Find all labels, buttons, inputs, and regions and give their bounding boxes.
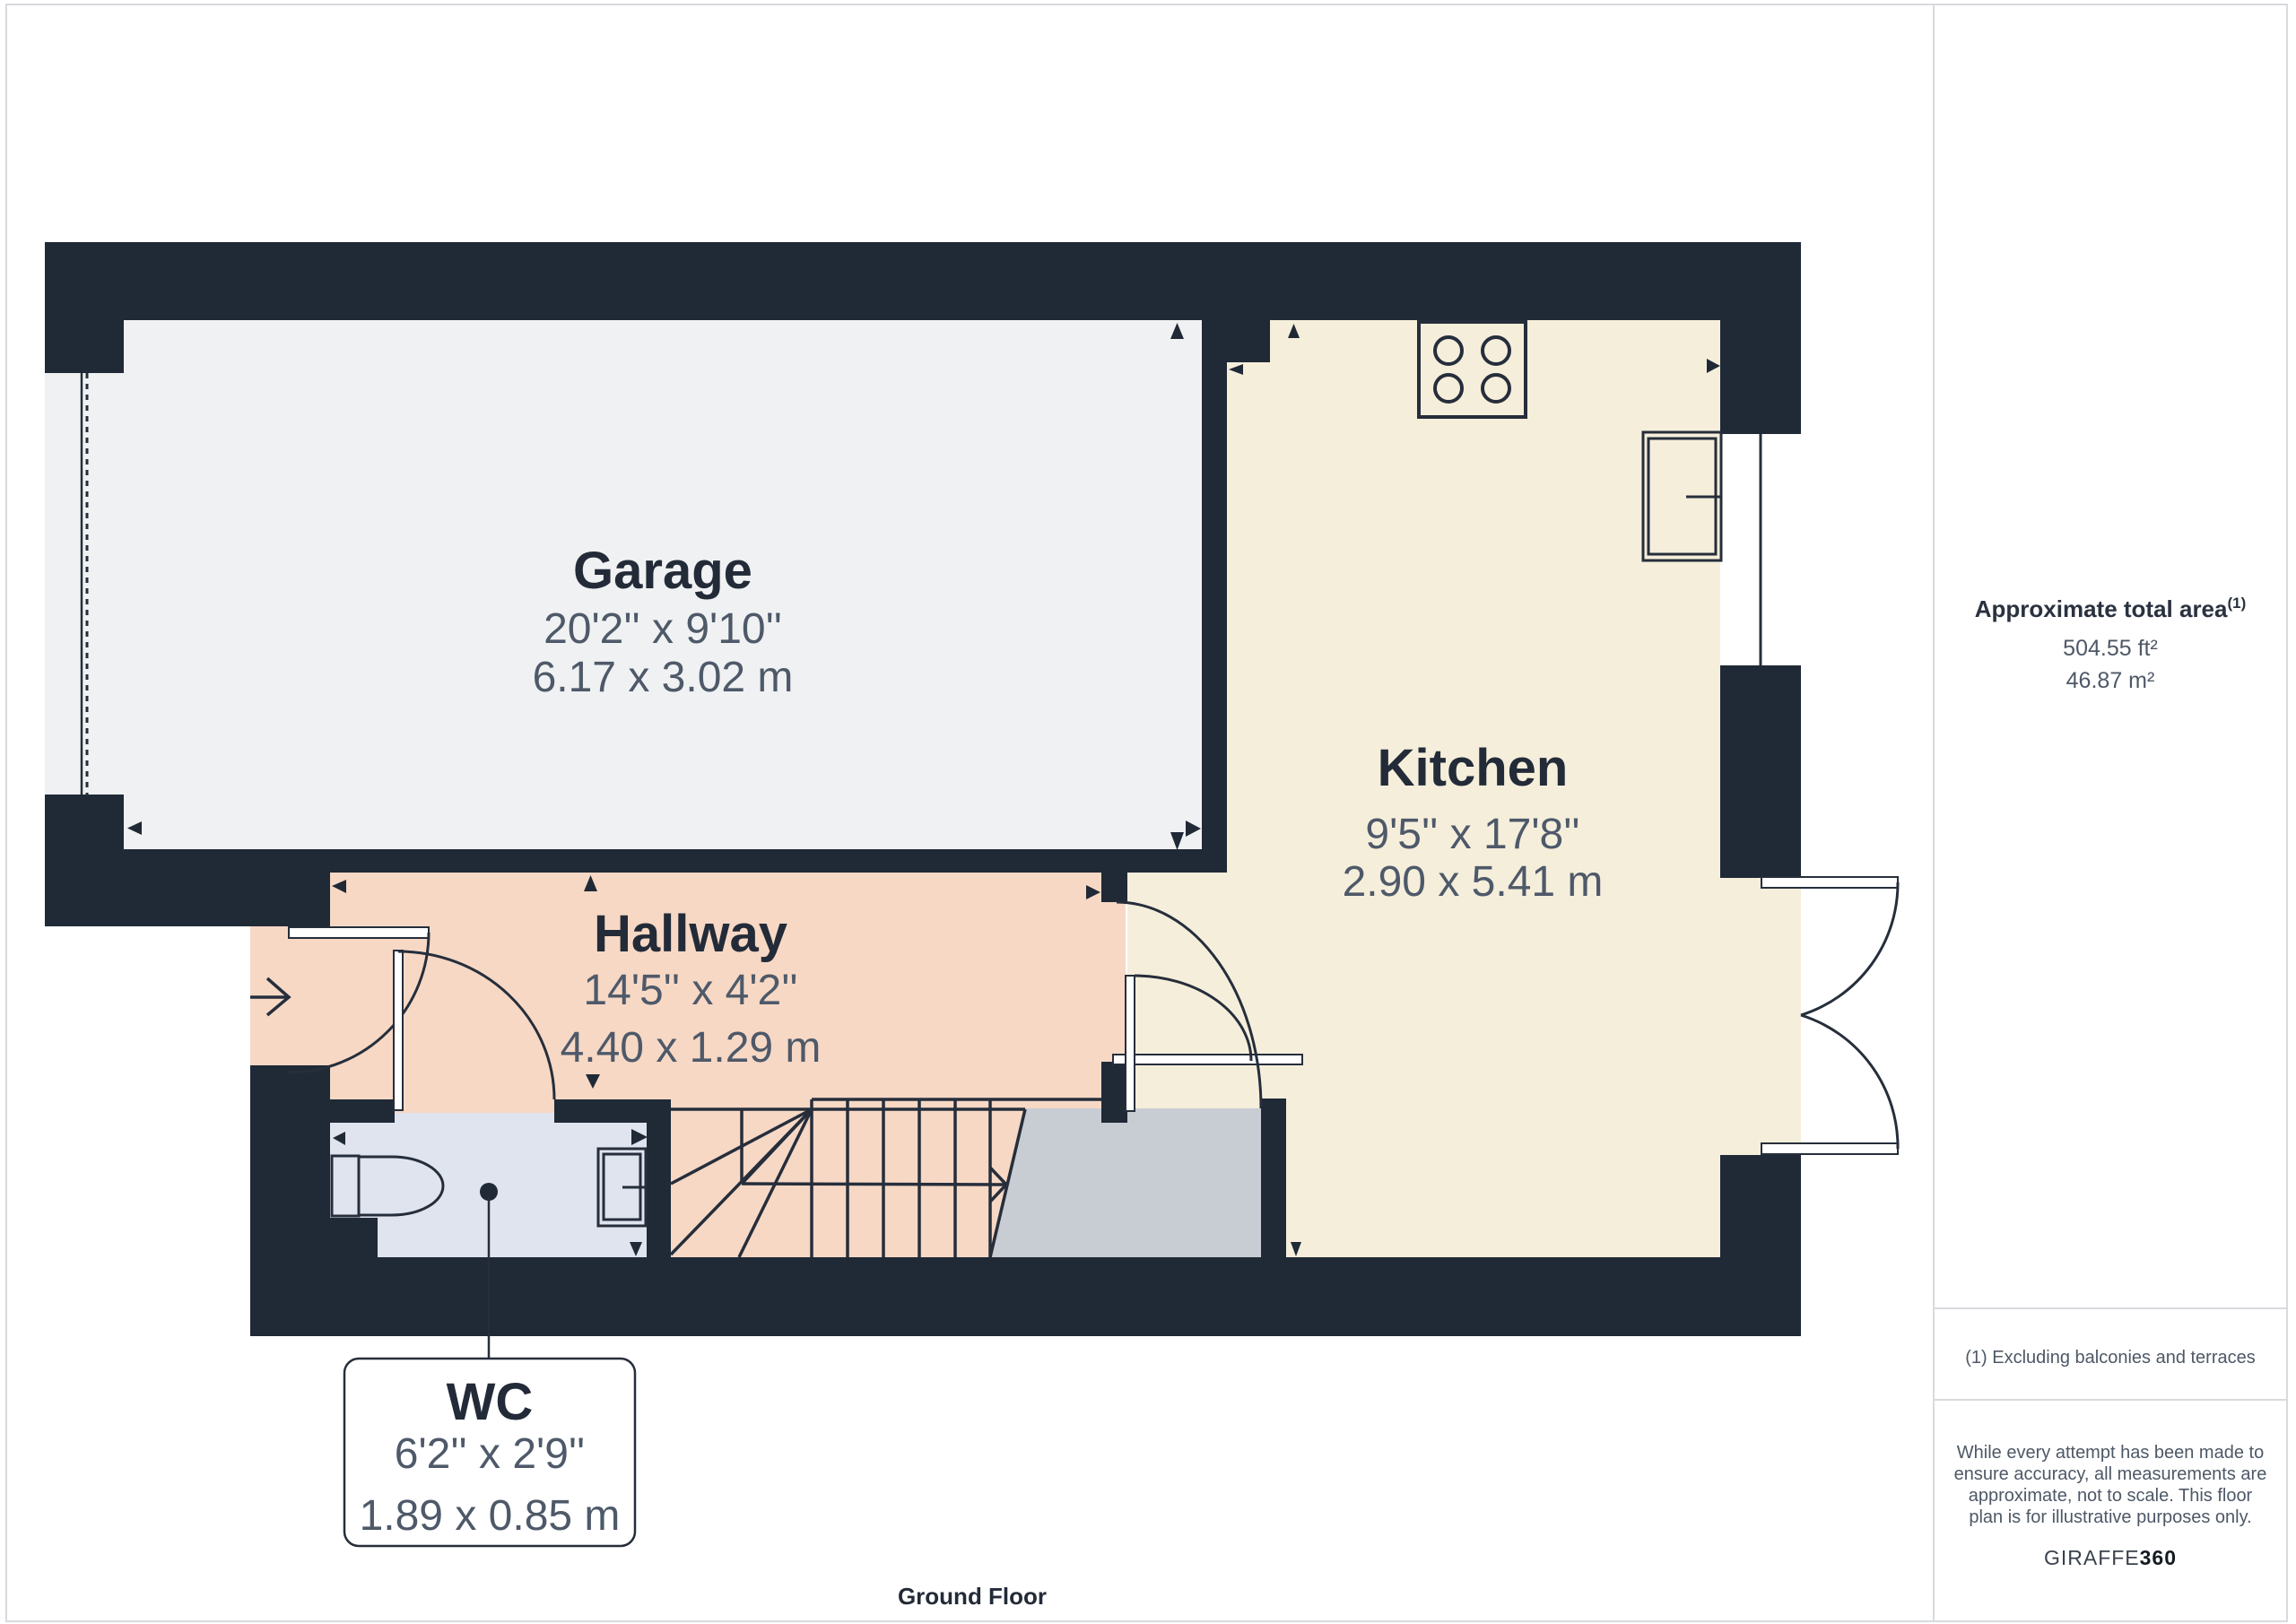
svg-text:approximate, not to scale. Thi: approximate, not to scale. This floor [1969, 1486, 2253, 1506]
svg-text:Garage: Garage [573, 542, 752, 600]
svg-text:Approximate total area(1): Approximate total area(1) [1975, 595, 2247, 622]
svg-text:504.55 ft²: 504.55 ft² [2063, 636, 2158, 661]
svg-text:While every attempt has been m: While every attempt has been made to [1957, 1443, 2264, 1463]
svg-text:Ground Floor: Ground Floor [898, 1583, 1047, 1610]
svg-text:ensure accuracy, all measureme: ensure accuracy, all measurements are [1954, 1464, 2267, 1484]
svg-text:6.17 x 3.02 m: 6.17 x 3.02 m [533, 654, 794, 701]
svg-text:2.90 x 5.41 m: 2.90 x 5.41 m [1343, 858, 1604, 906]
svg-text:6'2'' x 2'9'': 6'2'' x 2'9'' [395, 1430, 585, 1478]
svg-text:4.40 x 1.29 m: 4.40 x 1.29 m [561, 1024, 822, 1072]
svg-text:14'5'' x 4'2'': 14'5'' x 4'2'' [583, 967, 797, 1014]
svg-text:plan is for illustrative purpo: plan is for illustrative purposes only. [1969, 1507, 2251, 1527]
svg-text:20'2'' x 9'10'': 20'2'' x 9'10'' [544, 605, 782, 653]
svg-text:Hallway: Hallway [594, 905, 787, 963]
svg-text:GIRAFFE360: GIRAFFE360 [2044, 1546, 2177, 1569]
svg-text:Kitchen: Kitchen [1378, 739, 1569, 797]
svg-text:1.89 x 0.85 m: 1.89 x 0.85 m [360, 1492, 621, 1540]
svg-text:9'5'' x 17'8'': 9'5'' x 17'8'' [1365, 811, 1579, 858]
svg-text:46.87 m²: 46.87 m² [2066, 668, 2155, 693]
svg-text:WC: WC [447, 1373, 534, 1431]
svg-text:(1) Excluding balconies and te: (1) Excluding balconies and terraces [1965, 1348, 2256, 1368]
